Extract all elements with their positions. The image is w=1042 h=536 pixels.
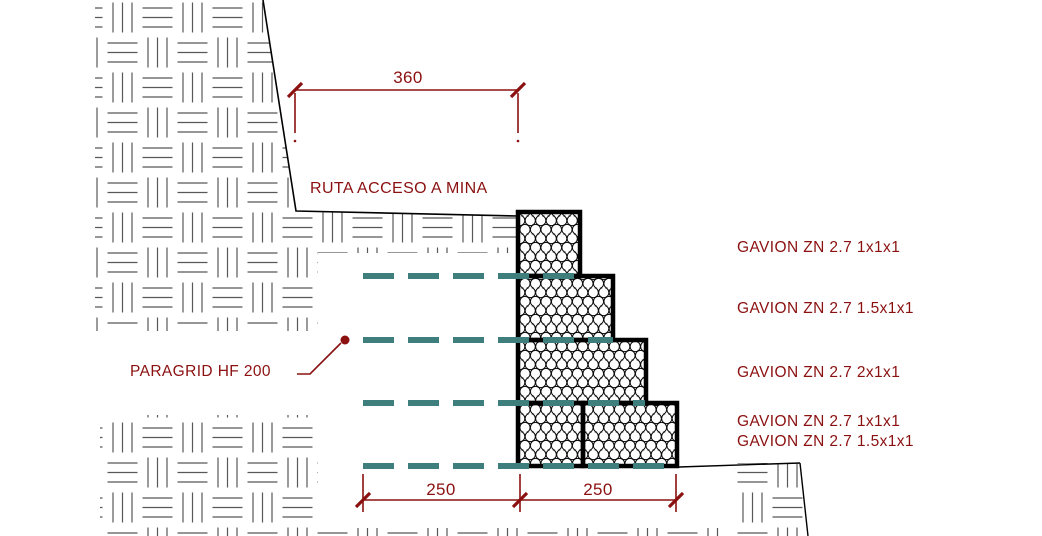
bottom-right-dimension-value: 250 xyxy=(567,480,629,500)
gabion-box-tier4-top xyxy=(518,212,580,276)
paragrid-leader-line xyxy=(297,343,341,374)
gavion-label-tier3: GAVION ZN 2.7 1.5x1x1 xyxy=(737,300,914,318)
gabion-box-tier1-right xyxy=(583,403,677,466)
bottom-left-dimension-value: 250 xyxy=(410,480,472,500)
right-berm-soil-hatch xyxy=(733,463,808,536)
road-access-label: RUTA ACCESO A MINA xyxy=(310,180,488,198)
gavion-label-tier2: GAVION ZN 2.7 2x1x1 xyxy=(737,364,900,382)
gavion-label-tier4: GAVION ZN 2.7 1x1x1 xyxy=(737,239,900,257)
gabion-box-tier1-left xyxy=(518,403,583,466)
upper-slope-soil-hatch xyxy=(95,0,518,331)
gavion-label-tier1-b: GAVION ZN 2.7 1.5x1x1 xyxy=(737,433,914,451)
gabion-box-tier3 xyxy=(518,276,613,340)
gavion-label-tier1-a: GAVION ZN 2.7 1x1x1 xyxy=(737,413,900,431)
drawing-canvas xyxy=(0,0,1042,536)
lower-left-soil-hatch xyxy=(100,415,318,536)
top-dim-origin-dot-left xyxy=(294,140,297,143)
paragrid-label: PARAGRID HF 200 xyxy=(130,363,271,381)
top-dimension-value: 360 xyxy=(377,68,439,88)
gabion-wall-cross-section: RUTA ACCESO A MINA 360 250 250 PARAGRID … xyxy=(0,0,1042,536)
bottom-soil-strip-hatch xyxy=(318,528,723,536)
gabion-box-tier2 xyxy=(518,340,646,403)
paragrid-marker-dot xyxy=(341,336,350,345)
top-dim-origin-dot-right xyxy=(517,140,520,143)
